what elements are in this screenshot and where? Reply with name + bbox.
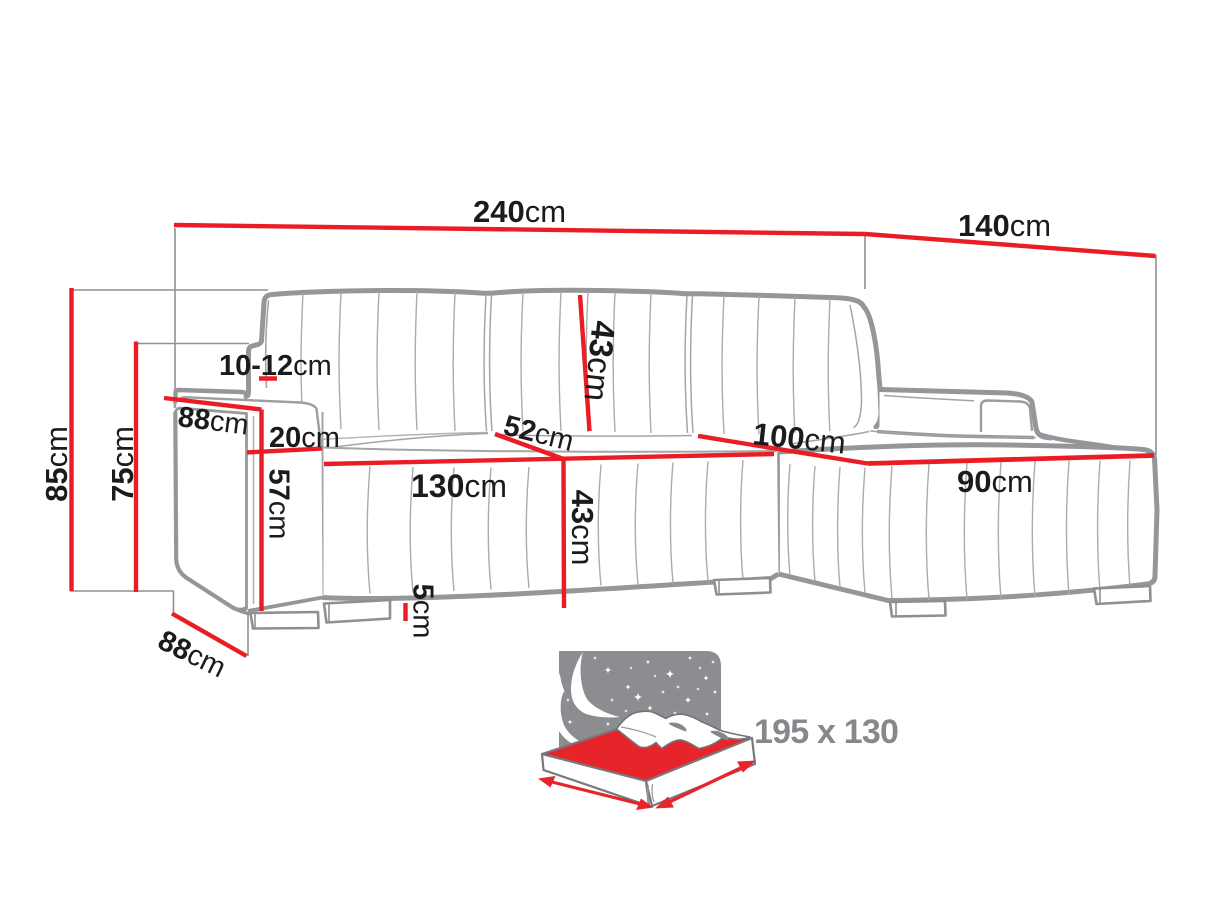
svg-text:10-12cm: 10-12cm xyxy=(219,350,332,382)
svg-text:195 x 130: 195 x 130 xyxy=(754,713,898,751)
svg-text:57cm: 57cm xyxy=(263,469,295,540)
svg-text:140cm: 140cm xyxy=(958,208,1051,243)
svg-text:20cm: 20cm xyxy=(269,422,340,454)
svg-text:43cm: 43cm xyxy=(565,490,600,566)
svg-text:240cm: 240cm xyxy=(473,194,566,229)
svg-text:130cm: 130cm xyxy=(411,468,507,504)
svg-text:90cm: 90cm xyxy=(957,464,1033,499)
svg-text:5cm: 5cm xyxy=(407,584,439,639)
svg-text:85cm: 85cm xyxy=(39,426,74,502)
svg-text:75cm: 75cm xyxy=(105,426,140,502)
